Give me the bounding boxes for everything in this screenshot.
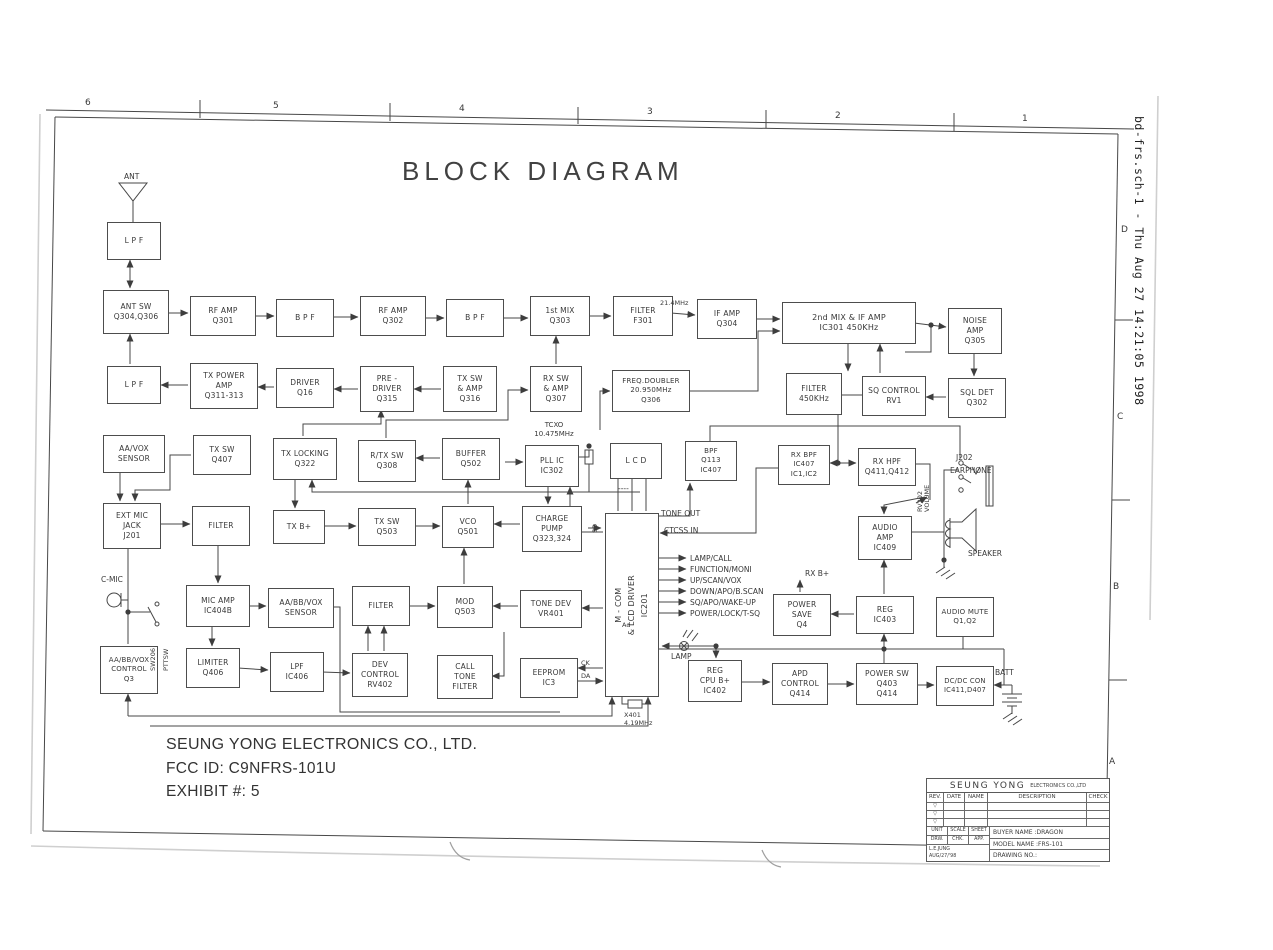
col-date: DATE: [944, 793, 965, 802]
wire: [688, 331, 780, 391]
footer-company: SEUNG YONG ELECTRONICS CO., LTD.: [166, 736, 477, 754]
wire: [660, 468, 778, 533]
microphone-icon: [107, 593, 128, 607]
wire: [838, 395, 862, 463]
wire: [577, 450, 589, 457]
cell-drw: DRW.: [927, 836, 948, 844]
junction-dot: [928, 322, 933, 327]
wire: [884, 497, 925, 514]
speaker-icon: [946, 509, 977, 551]
revision-row: ▽: [927, 803, 1109, 811]
wire: [303, 410, 381, 436]
buyer-name: BUYER NAME :DRAGON: [990, 827, 1109, 839]
signature-name: L.E.JUNG: [929, 846, 989, 853]
wire: [332, 607, 560, 712]
wire: [322, 672, 350, 673]
battery-icon: [1002, 685, 1022, 725]
cell-app: APP.: [969, 836, 989, 844]
wire: [910, 470, 958, 532]
wire: [671, 313, 695, 315]
wire: [43, 117, 55, 831]
junction-dot: [586, 443, 591, 448]
page-curl-mark-1: [450, 842, 470, 860]
page-curl-mark-2: [762, 850, 781, 867]
junction-dot: [881, 646, 886, 651]
antenna-icon: [119, 183, 147, 201]
paper-edge-left: [31, 114, 40, 834]
page-title: BLOCK DIAGRAM: [402, 156, 684, 187]
footer-fcc-id: FCC ID: C9NFRS-101U: [166, 760, 336, 778]
wire: [312, 480, 640, 492]
paper-edge-right: [1150, 96, 1158, 620]
junction-dot: [125, 609, 130, 614]
signature-cell: L.E.JUNG AUG/27/'98: [927, 845, 989, 861]
revision-row: ▽: [927, 819, 1109, 827]
junction-dot: [713, 643, 718, 648]
crystal-icon: [622, 695, 648, 708]
wire: [135, 455, 191, 501]
cell-unit: UNIT: [927, 827, 948, 835]
col-check: CHECK: [1087, 793, 1109, 802]
revision-row: ▽: [927, 811, 1109, 819]
title-block: SEUNG YONG ELECTRONICS CO.,LTD REV. DATE…: [926, 778, 1110, 862]
rev-mark-icon: ▽: [927, 811, 944, 818]
cell-chk: CHK.: [948, 836, 969, 844]
scanned-schematic-sheet: L P FANT SWQ304,Q306RF AMPQ301B P FRF AM…: [0, 0, 1273, 950]
wire: [386, 390, 528, 438]
col-rev: REV.: [927, 793, 944, 802]
company-name: SEUNG YONG: [950, 781, 1025, 791]
cell-sheet: SHEET: [969, 827, 989, 835]
wire: [600, 391, 610, 430]
earphone-jack-icon: [959, 461, 993, 506]
ground-icon-speaker: [936, 560, 955, 579]
rev-mark-icon: ▽: [927, 803, 944, 810]
model-name: MODEL NAME :FRS-101: [990, 839, 1109, 851]
cell-scale: SCALE: [948, 827, 969, 835]
footer-exhibit: EXHIBIT #: 5: [166, 783, 260, 801]
wire: [710, 426, 960, 458]
plot-timestamp: bd-frs.sch-1 - Thu Aug 27 14:21:05 1998: [1132, 116, 1146, 406]
revision-table-header: REV. DATE NAME DESCRIPTION CHECK: [927, 793, 1109, 803]
col-description: DESCRIPTION: [988, 793, 1087, 802]
wire: [657, 483, 690, 516]
wire: [492, 632, 504, 676]
wire: [238, 668, 268, 670]
wire: [570, 487, 603, 532]
wire: [1106, 134, 1118, 848]
col-name: NAME: [965, 793, 988, 802]
approval-grid: UNIT SCALE SHEET DRW. CHK. APP. L.E.JUNG…: [927, 827, 990, 861]
wire: [905, 325, 931, 352]
rev-mark-icon: ▽: [927, 819, 944, 826]
drawing-no: DRAWING NO.:: [990, 850, 1109, 861]
company-suffix: ELECTRONICS CO.,LTD: [1030, 783, 1086, 789]
wire: [128, 697, 612, 716]
junction-dot: [835, 460, 840, 465]
ptt-switch-icon: [148, 602, 159, 626]
title-block-company: SEUNG YONG ELECTRONICS CO.,LTD: [927, 779, 1109, 793]
wire: [914, 464, 930, 500]
lamp-icon: [680, 630, 699, 651]
signature-date: AUG/27/'98: [929, 853, 989, 860]
